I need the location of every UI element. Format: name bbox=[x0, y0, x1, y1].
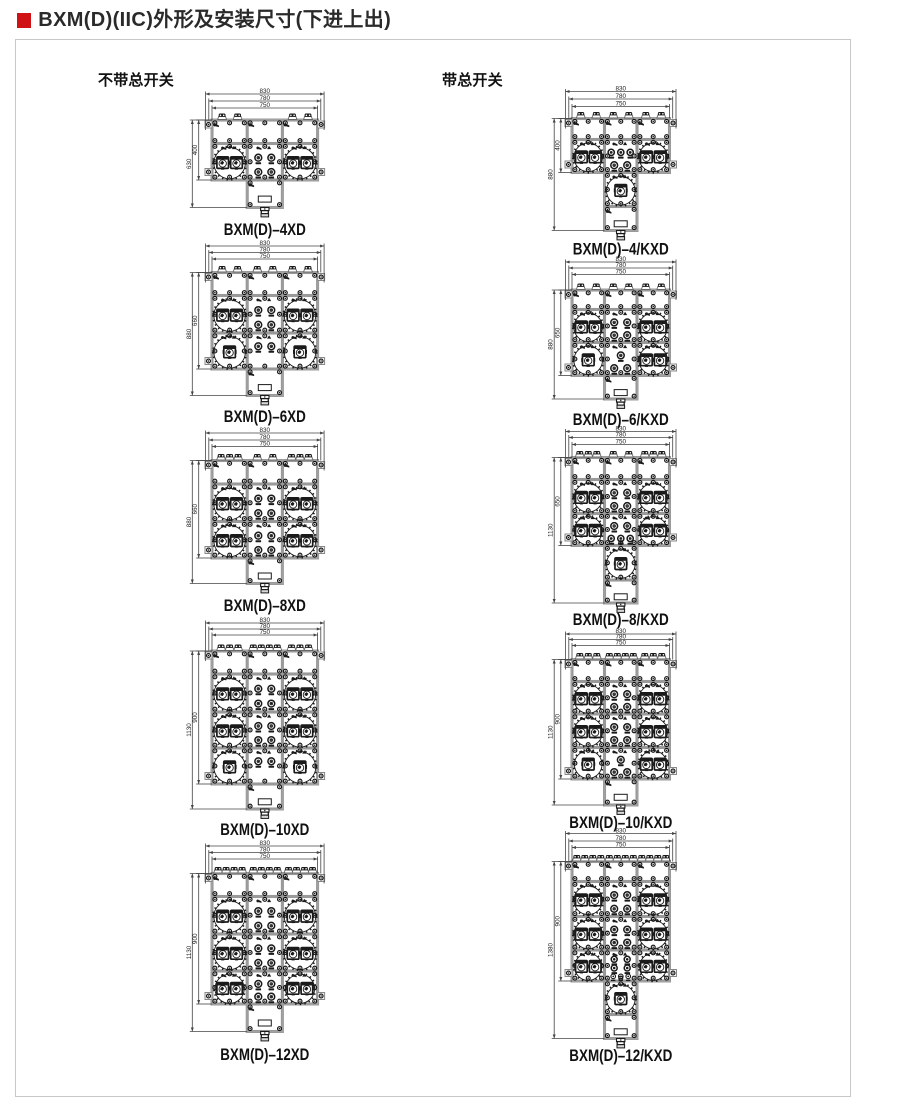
svg-text:780: 780 bbox=[260, 95, 271, 102]
svg-text:630: 630 bbox=[186, 158, 193, 169]
svg-text:650: 650 bbox=[554, 496, 561, 507]
svg-text:900: 900 bbox=[554, 713, 561, 724]
svg-text:1380: 1380 bbox=[548, 943, 555, 958]
svg-text:BXM(D)–6XD: BXM(D)–6XD bbox=[224, 408, 306, 426]
svg-text:1130: 1130 bbox=[186, 945, 193, 959]
svg-text:900: 900 bbox=[192, 712, 199, 723]
svg-text:BXM(D)–12XD: BXM(D)–12XD bbox=[220, 1046, 309, 1064]
svg-text:650: 650 bbox=[554, 327, 561, 338]
svg-text:750: 750 bbox=[260, 629, 271, 636]
svg-text:BXM(D)–8XD: BXM(D)–8XD bbox=[224, 597, 306, 615]
svg-text:900: 900 bbox=[192, 933, 199, 944]
svg-text:660: 660 bbox=[192, 503, 199, 514]
svg-text:780: 780 bbox=[616, 93, 627, 100]
svg-text:750: 750 bbox=[616, 438, 627, 445]
svg-text:830: 830 bbox=[616, 85, 627, 92]
svg-text:BXM(D)–4XD: BXM(D)–4XD bbox=[224, 221, 306, 239]
svg-text:750: 750 bbox=[260, 853, 271, 860]
svg-text:400: 400 bbox=[192, 144, 199, 155]
svg-text:750: 750 bbox=[616, 100, 627, 107]
svg-text:1130: 1130 bbox=[548, 523, 555, 537]
svg-text:830: 830 bbox=[260, 427, 271, 434]
svg-text:1130: 1130 bbox=[186, 723, 193, 737]
svg-text:880: 880 bbox=[186, 328, 193, 339]
svg-text:750: 750 bbox=[616, 268, 627, 275]
svg-text:900: 900 bbox=[554, 915, 561, 926]
svg-text:830: 830 bbox=[260, 88, 271, 95]
svg-text:660: 660 bbox=[192, 315, 199, 326]
svg-text:750: 750 bbox=[260, 102, 271, 109]
svg-text:830: 830 bbox=[616, 827, 627, 834]
svg-text:400: 400 bbox=[554, 140, 561, 151]
svg-text:BXM(D)–8/KXD: BXM(D)–8/KXD bbox=[573, 611, 669, 629]
svg-text:1130: 1130 bbox=[548, 725, 555, 739]
svg-text:BXM(D)–10XD: BXM(D)–10XD bbox=[220, 821, 309, 839]
svg-text:880: 880 bbox=[186, 516, 193, 527]
svg-text:BXM(D)–12/KXD: BXM(D)–12/KXD bbox=[569, 1047, 672, 1065]
svg-text:880: 880 bbox=[548, 339, 555, 350]
svg-text:750: 750 bbox=[260, 253, 271, 260]
svg-text:750: 750 bbox=[616, 639, 627, 646]
svg-text:780: 780 bbox=[616, 431, 627, 438]
svg-text:750: 750 bbox=[260, 440, 271, 447]
svg-text:750: 750 bbox=[616, 841, 627, 848]
svg-text:880: 880 bbox=[548, 169, 555, 180]
